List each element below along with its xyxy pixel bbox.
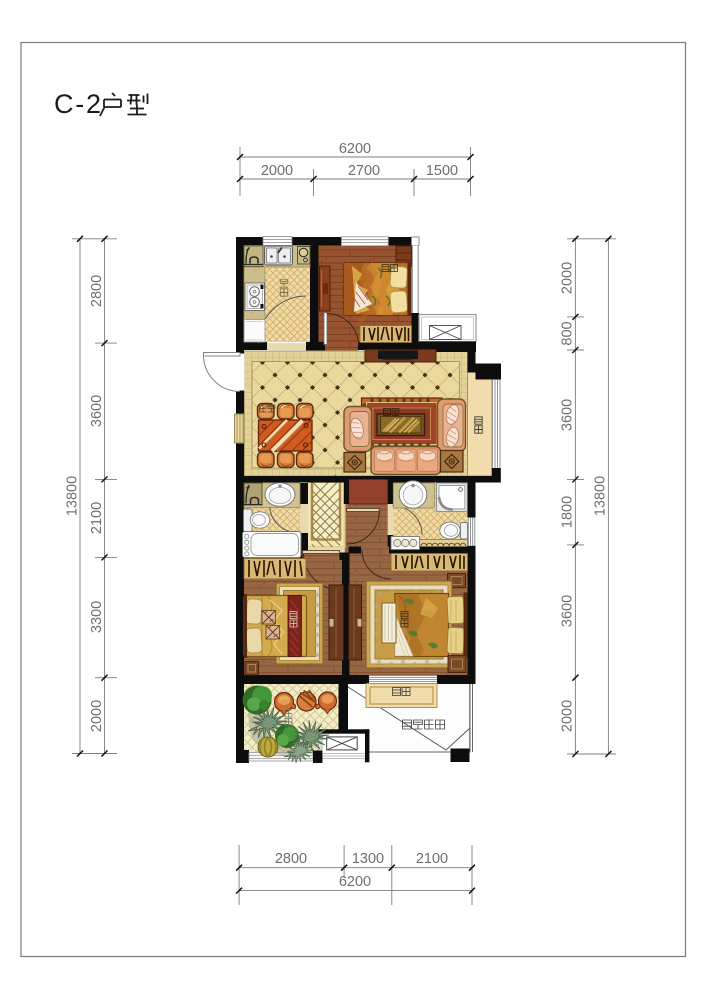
svg-text:C-2: C-2 <box>54 89 101 119</box>
svg-text:3300: 3300 <box>89 601 105 633</box>
svg-text:2000: 2000 <box>89 700 105 732</box>
svg-text:2000: 2000 <box>261 163 293 179</box>
svg-text:3600: 3600 <box>89 395 105 427</box>
svg-text:1300: 1300 <box>352 851 384 867</box>
svg-text:6200: 6200 <box>339 874 371 890</box>
svg-text:3600: 3600 <box>560 595 576 627</box>
svg-text:13800: 13800 <box>593 476 609 516</box>
svg-text:2100: 2100 <box>89 502 105 534</box>
svg-text:1500: 1500 <box>426 163 458 179</box>
svg-text:1800: 1800 <box>560 496 576 528</box>
svg-text:2000: 2000 <box>560 700 576 732</box>
svg-text:800: 800 <box>560 321 576 345</box>
svg-text:2700: 2700 <box>348 163 380 179</box>
svg-text:13800: 13800 <box>65 476 81 516</box>
svg-text:6200: 6200 <box>339 141 371 157</box>
svg-text:2100: 2100 <box>416 851 448 867</box>
svg-text:3600: 3600 <box>560 399 576 431</box>
svg-text:2000: 2000 <box>560 262 576 294</box>
svg-text:2800: 2800 <box>275 851 307 867</box>
svg-text:2800: 2800 <box>89 275 105 307</box>
